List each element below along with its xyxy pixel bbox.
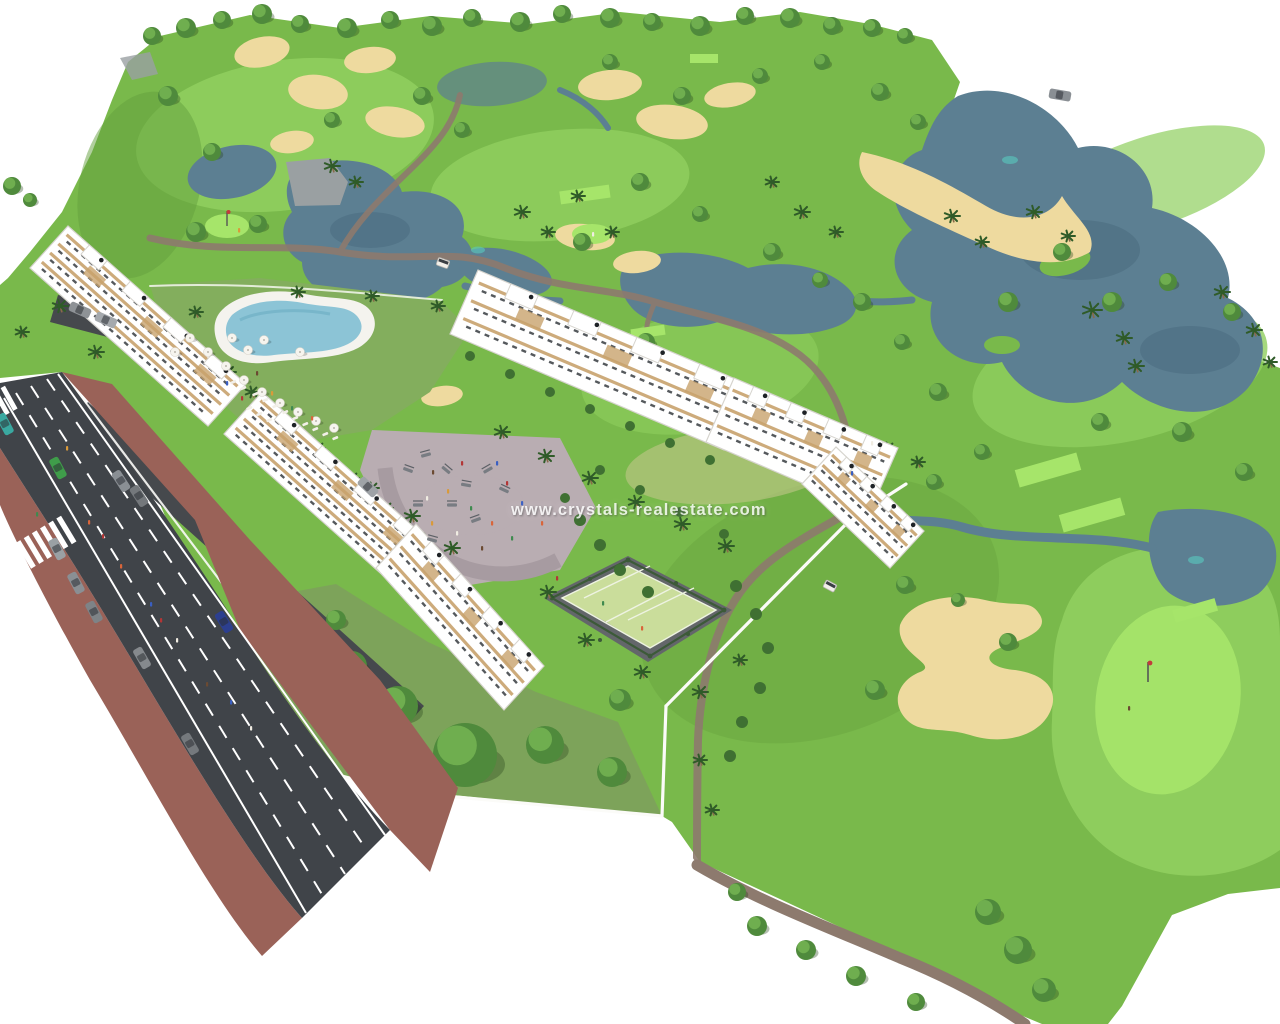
person-marker	[556, 576, 558, 581]
palm-center	[410, 514, 414, 518]
hedge-icon	[750, 608, 762, 620]
tree-highlight	[464, 10, 475, 21]
tree-highlight	[632, 174, 643, 185]
person-marker	[1128, 706, 1130, 711]
tree-highlight	[159, 87, 171, 99]
palm-center	[634, 500, 638, 504]
person-marker	[230, 700, 232, 705]
tree-highlight	[253, 5, 265, 17]
rooftop-unit	[911, 523, 916, 528]
rooftop-unit	[99, 258, 104, 263]
tree-highlight	[511, 13, 523, 25]
palm-center	[680, 522, 684, 526]
tree-highlight	[1054, 244, 1065, 255]
palm-center	[710, 808, 714, 812]
person-marker	[160, 618, 162, 623]
tree-highlight	[574, 234, 585, 245]
person-marker	[491, 521, 493, 526]
palm-center	[800, 210, 804, 214]
parasol-pole	[231, 337, 233, 339]
person-marker	[461, 461, 463, 466]
palm-center	[1090, 308, 1094, 312]
rooftop-unit	[498, 621, 503, 626]
rooftop-unit	[842, 427, 847, 432]
tree-highlight	[327, 611, 339, 623]
tree-highlight	[977, 900, 993, 916]
palm-center	[1032, 210, 1036, 214]
palm-center	[1220, 290, 1224, 294]
person-marker	[241, 396, 243, 401]
person-marker	[851, 471, 853, 476]
rooftop-unit	[468, 587, 473, 592]
hedge-icon	[719, 529, 729, 539]
person-marker	[481, 546, 483, 551]
palm-center	[610, 230, 614, 234]
tree-highlight	[437, 726, 477, 766]
palm-center	[588, 476, 592, 480]
palm-center	[770, 180, 774, 184]
person-marker	[592, 232, 594, 237]
equipment-frame	[413, 503, 423, 506]
tree-highlight	[338, 19, 350, 31]
tree-highlight	[1160, 274, 1171, 285]
hedge-icon	[594, 539, 606, 551]
palm-center	[370, 294, 374, 298]
tree-highlight	[898, 29, 908, 39]
person-marker	[311, 416, 313, 421]
hedge-icon	[625, 421, 635, 431]
rooftop-unit	[878, 443, 883, 448]
tree-highlight	[866, 681, 878, 693]
rooftop-unit	[660, 350, 665, 355]
tree-highlight	[895, 335, 905, 345]
palm-center	[520, 210, 524, 214]
tree-highlight	[599, 758, 618, 777]
hedge-icon	[705, 455, 715, 465]
palm-center	[330, 164, 334, 168]
person-marker	[176, 638, 178, 643]
tree-highlight	[382, 12, 393, 23]
tree-highlight	[930, 384, 941, 395]
parasol-pole	[225, 365, 227, 367]
tree-highlight	[204, 144, 215, 155]
rooftop-unit	[763, 394, 768, 399]
palm-center	[584, 638, 588, 642]
palm-center	[94, 350, 98, 354]
person-marker	[120, 564, 122, 569]
rooftop-unit	[142, 296, 147, 301]
tree-highlight	[781, 9, 793, 21]
tree-highlight	[1103, 293, 1115, 305]
person-marker	[238, 228, 240, 233]
person-marker	[256, 371, 258, 376]
tree-highlight	[1224, 304, 1235, 315]
tree-highlight	[797, 941, 809, 953]
palm-center	[436, 304, 440, 308]
tree-highlight	[603, 55, 613, 65]
rooftop-unit	[721, 376, 726, 381]
rooftop-unit	[595, 323, 600, 328]
tree-highlight	[815, 55, 825, 65]
person-marker	[602, 601, 604, 606]
tree-highlight	[737, 8, 748, 19]
palm-center	[640, 670, 644, 674]
palm-center	[698, 758, 702, 762]
person-marker	[226, 381, 228, 386]
tree-highlight	[250, 216, 261, 227]
person-marker	[291, 406, 293, 411]
tree-highlight	[872, 84, 883, 95]
palm-center	[950, 214, 954, 218]
hedge-icon	[730, 580, 742, 592]
palm-center	[1066, 234, 1070, 238]
palm-center	[1268, 360, 1272, 364]
palm-center	[1122, 336, 1126, 340]
equipment-frame	[447, 503, 457, 506]
hedge-icon	[762, 642, 774, 654]
person-marker	[36, 512, 38, 517]
tree-highlight	[729, 884, 740, 895]
tree-highlight	[999, 293, 1011, 305]
palm-center	[354, 180, 358, 184]
rooftop-unit	[849, 464, 854, 469]
parasol-pole	[189, 337, 191, 339]
palm-center	[738, 658, 742, 662]
tree-highlight	[325, 113, 335, 123]
hedge-icon	[595, 465, 605, 475]
palm-center	[724, 544, 728, 548]
tree-highlight	[423, 17, 435, 29]
palm-center	[546, 590, 550, 594]
tree-highlight	[693, 207, 703, 217]
tree-highlight	[1000, 634, 1011, 645]
hedge-icon	[614, 564, 626, 576]
person-marker	[432, 470, 434, 475]
tree-highlight	[854, 294, 865, 305]
palm-center	[296, 290, 300, 294]
person-marker	[506, 481, 508, 486]
hedge-icon	[642, 586, 654, 598]
rooftop-unit	[892, 504, 897, 509]
tree-highlight	[644, 14, 655, 25]
rooftop-unit	[374, 496, 379, 501]
person-marker	[447, 489, 449, 494]
parasol-pole	[207, 351, 209, 353]
person-marker	[431, 521, 433, 526]
tree-highlight	[24, 194, 33, 203]
scene-svg: ?	[0, 0, 1280, 1024]
person-marker	[541, 521, 543, 526]
person-marker	[456, 531, 458, 536]
tree-highlight	[610, 690, 624, 704]
person-marker	[521, 501, 523, 506]
hedge-icon	[560, 493, 570, 503]
tree-highlight	[824, 18, 835, 29]
tree-highlight	[144, 28, 155, 39]
parasol-pole	[243, 379, 245, 381]
tree-highlight	[177, 19, 189, 31]
tree-highlight	[975, 445, 985, 455]
person-marker	[511, 536, 513, 541]
tree-highlight	[1034, 979, 1049, 994]
tree-highlight	[1006, 937, 1023, 954]
person-marker	[206, 682, 208, 687]
tree-highlight	[528, 728, 552, 752]
hedge-icon	[754, 682, 766, 694]
parasol-pole	[263, 339, 265, 341]
car-windshield	[1055, 90, 1063, 99]
person-marker	[496, 461, 498, 466]
hedge-icon	[675, 507, 685, 517]
palm-center	[916, 460, 920, 464]
tree-highlight	[4, 178, 15, 189]
tree-highlight	[691, 17, 703, 29]
tree-highlight	[214, 12, 225, 23]
hedge-icon	[736, 716, 748, 728]
tree-highlight	[927, 475, 937, 485]
parasol-pole	[279, 402, 281, 404]
tree-highlight	[897, 577, 908, 588]
hedge-icon	[585, 404, 595, 414]
hedge-icon	[545, 387, 555, 397]
parasol-pole	[333, 427, 335, 429]
parasol-pole	[299, 351, 301, 353]
palm-center	[980, 240, 984, 244]
architectural-render: ?	[0, 0, 1280, 1024]
rooftop-unit	[802, 410, 807, 415]
hedge-icon	[574, 514, 586, 526]
palm-center	[500, 430, 504, 434]
palm-center	[194, 310, 198, 314]
tree-highlight	[674, 88, 685, 99]
palm-center	[20, 330, 24, 334]
rooftop-unit	[870, 484, 875, 489]
palm-center	[544, 454, 548, 458]
parasol-pole	[174, 351, 176, 353]
palm-center	[546, 230, 550, 234]
tree-highlight	[414, 88, 425, 99]
palm-center	[58, 304, 62, 308]
rooftop-unit	[333, 460, 338, 465]
tree-highlight	[753, 69, 763, 79]
palm-center	[698, 690, 702, 694]
palm-center	[1134, 364, 1138, 368]
parasol-pole	[247, 349, 249, 351]
hedge-icon	[635, 485, 645, 495]
tree-highlight	[864, 20, 875, 31]
person-marker	[150, 602, 152, 607]
person-marker	[271, 391, 273, 396]
hedge-icon	[465, 351, 475, 361]
parasol-pole	[297, 411, 299, 413]
tree-highlight	[601, 9, 613, 21]
tree-highlight	[554, 6, 565, 17]
person-marker	[871, 441, 873, 446]
tree-highlight	[908, 994, 919, 1005]
tree-highlight	[813, 273, 823, 283]
tree-highlight	[292, 16, 303, 27]
person-marker	[66, 446, 68, 451]
tree-highlight	[455, 123, 465, 133]
tree-highlight	[847, 967, 859, 979]
hedge-icon	[665, 438, 675, 448]
person-marker	[426, 496, 428, 501]
person-marker	[88, 520, 90, 525]
person-marker	[102, 534, 104, 539]
tree-highlight	[1092, 414, 1103, 425]
tree-highlight	[911, 115, 921, 125]
rooftop-unit	[529, 295, 534, 300]
palm-center	[834, 230, 838, 234]
parasol-pole	[261, 391, 263, 393]
tree-highlight	[748, 917, 760, 929]
tree-highlight	[1173, 423, 1185, 435]
palm-center	[576, 194, 580, 198]
hedge-icon	[724, 750, 736, 762]
person-marker	[250, 726, 252, 731]
person-marker	[470, 506, 472, 511]
palm-center	[450, 546, 454, 550]
rooftop-unit	[292, 423, 297, 428]
rooftop-unit	[437, 553, 442, 558]
parasol-pole	[315, 420, 317, 422]
hedge-icon	[505, 369, 515, 379]
palm-center	[250, 390, 254, 394]
palm-center	[1252, 328, 1256, 332]
tree-highlight	[952, 594, 961, 603]
tree-highlight	[1236, 464, 1247, 475]
rooftop-unit	[527, 652, 532, 657]
tree-highlight	[187, 223, 199, 235]
tree-highlight	[764, 244, 775, 255]
person-marker	[641, 626, 643, 631]
